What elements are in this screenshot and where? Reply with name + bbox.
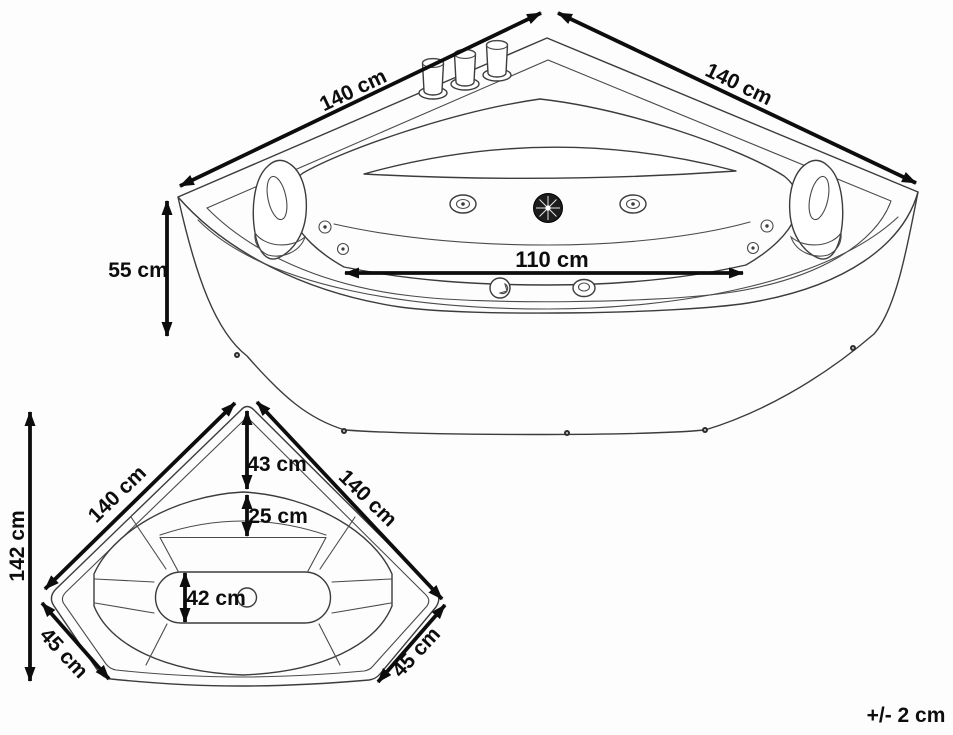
label-inner-width: 110 cm (515, 247, 588, 272)
plan-outline (51, 407, 438, 687)
jet-side-right-upper (761, 220, 773, 232)
tub-backrest-panel (364, 147, 736, 178)
dim-arrow-plan-edge-left (45, 403, 235, 589)
label-corner-to-rim: 43 cm (247, 453, 307, 476)
label-chamfer-right: 45 cm (388, 623, 445, 682)
jet-back-right (620, 195, 646, 213)
faucet-knob-3 (483, 41, 511, 81)
plan-backrest (160, 521, 326, 571)
headrest-left (253, 160, 306, 259)
plan-bowl-outline (94, 492, 392, 675)
plan-view: 142 cm 140 cm 140 cm 43 cm 25 cm 42 cm 4… (6, 402, 445, 686)
headrest-right (790, 160, 843, 259)
jet-side-right-lower (748, 243, 759, 254)
label-top-edge-right: 140 cm (702, 59, 776, 110)
tub-seat-edge-line (334, 222, 750, 245)
skirt-screws (234, 345, 856, 436)
label-overall-depth: 142 cm (6, 510, 29, 581)
overflow-cover (573, 280, 595, 297)
dim-arrow-plan-edge-right (257, 402, 442, 599)
label-floor-width: 42 cm (186, 587, 246, 610)
label-top-edge-left: 140 cm (316, 65, 390, 116)
jet-side-left-lower (338, 244, 349, 255)
diagram-canvas: 140 cm 140 cm 55 cm 110 cm (0, 0, 953, 735)
bathtub-dimension-diagram: 140 cm 140 cm 55 cm 110 cm (0, 0, 953, 735)
perspective-view: 140 cm 140 cm 55 cm 110 cm (108, 13, 918, 436)
tolerance-note: +/- 2 cm (867, 704, 946, 727)
jet-back-left (450, 195, 476, 213)
drain-lever (490, 278, 510, 298)
control-knob (534, 194, 563, 223)
label-height: 55 cm (108, 259, 168, 282)
label-rim-to-backrest: 25 cm (248, 505, 308, 528)
jet-side-left-upper (319, 221, 331, 233)
